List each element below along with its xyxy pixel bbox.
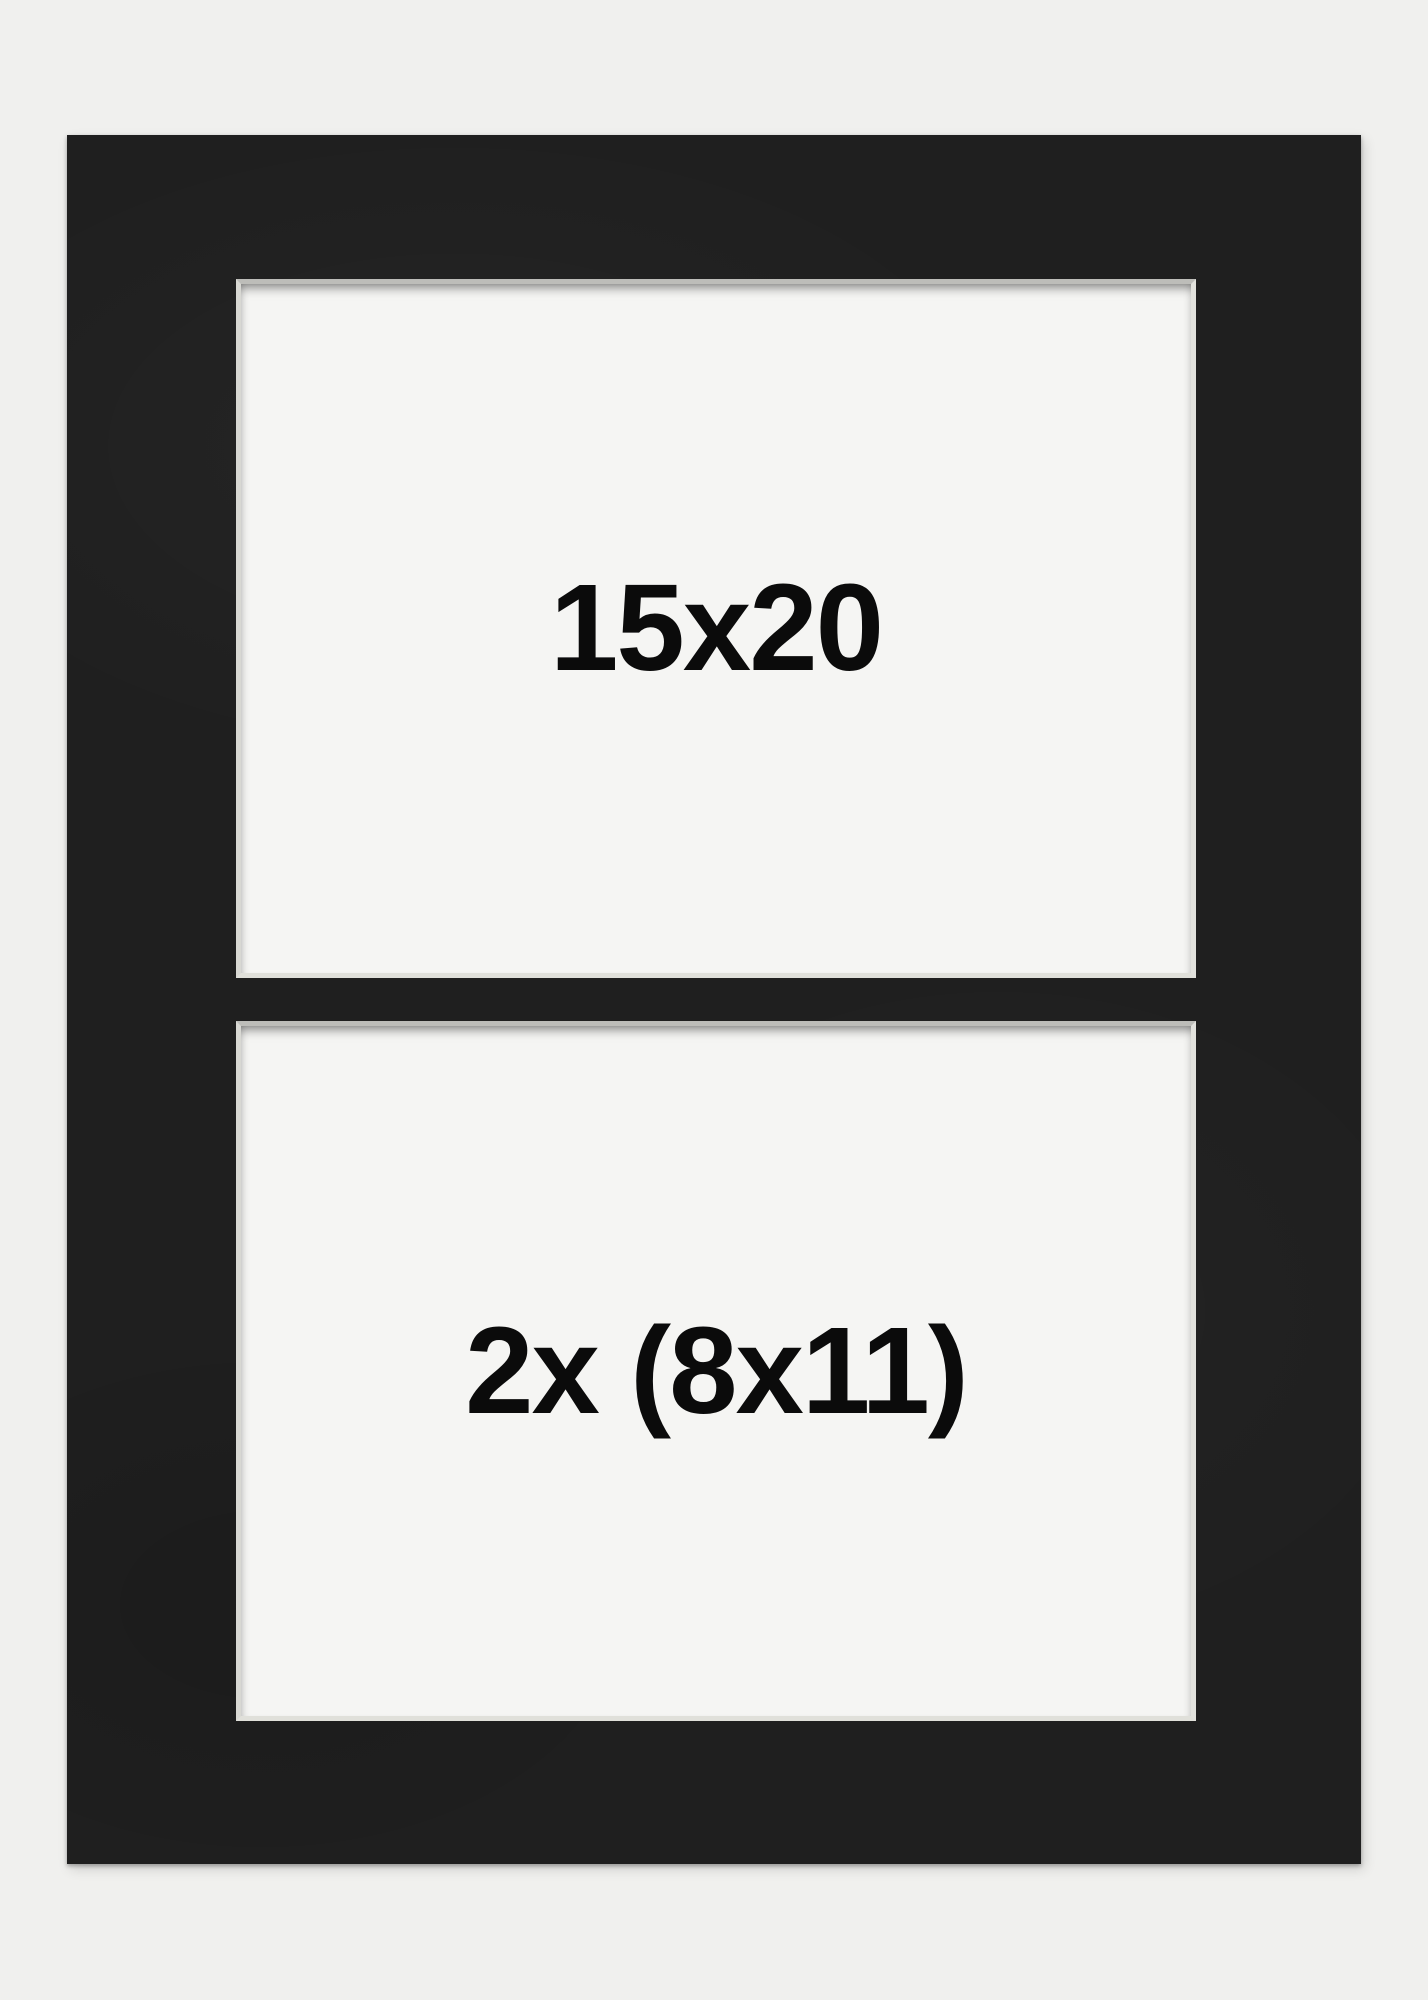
mat-opening-top: 15x20 — [236, 279, 1196, 978]
opening-top-size-label: 15x20 — [550, 567, 882, 690]
mat-board: 15x20 2x (8x11) — [67, 135, 1361, 1864]
mat-opening-bottom: 2x (8x11) — [236, 1021, 1196, 1721]
opening-bottom-size-label: 2x (8x11) — [465, 1310, 967, 1433]
product-photo: 15x20 2x (8x11) — [0, 0, 1428, 2000]
